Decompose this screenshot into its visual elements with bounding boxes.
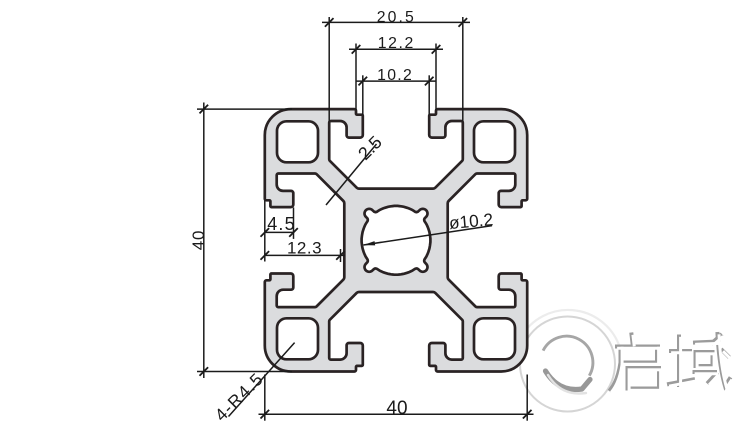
svg-text:12.2: 12.2 xyxy=(378,35,415,52)
svg-text:40: 40 xyxy=(189,230,208,251)
svg-text:12.3: 12.3 xyxy=(287,239,322,258)
svg-text:40: 40 xyxy=(386,398,407,419)
svg-text:10.2: 10.2 xyxy=(377,67,413,84)
svg-text:4.5: 4.5 xyxy=(267,214,296,234)
svg-text:20.5: 20.5 xyxy=(377,9,416,26)
svg-text:ø10.2: ø10.2 xyxy=(448,209,494,233)
